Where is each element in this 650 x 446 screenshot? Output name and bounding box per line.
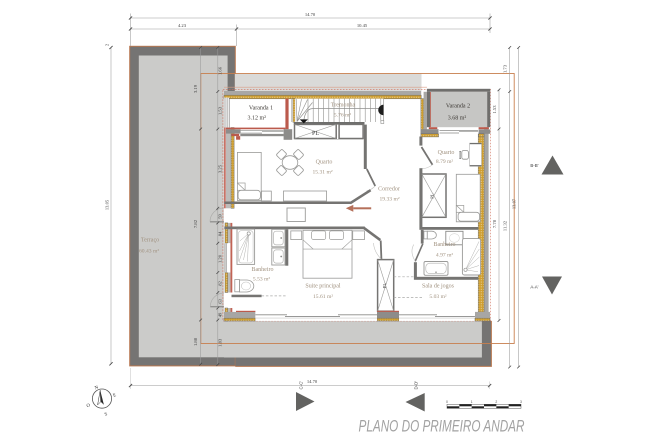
svg-text:1: 1 xyxy=(471,400,473,404)
svg-text:A-A': A-A' xyxy=(530,285,538,290)
svg-text:0: 0 xyxy=(446,400,448,404)
svg-text:60.43 m²: 60.43 m² xyxy=(139,249,159,255)
svg-text:Sala de jogos: Sala de jogos xyxy=(422,284,455,290)
svg-text:19.33 m²: 19.33 m² xyxy=(379,196,399,202)
svg-text:7.82: 7.82 xyxy=(193,219,198,228)
svg-text:59: 59 xyxy=(217,214,222,219)
svg-text:3.12 m²: 3.12 m² xyxy=(247,116,266,122)
svg-text:15.31 m²: 15.31 m² xyxy=(312,169,332,175)
svg-text:82: 82 xyxy=(217,281,222,286)
svg-text:5.76 m²: 5.76 m² xyxy=(334,113,352,119)
svg-text:3.25: 3.25 xyxy=(217,164,222,173)
svg-text:4.23: 4.23 xyxy=(178,23,187,28)
svg-text:8.79 m²: 8.79 m² xyxy=(436,159,454,165)
svg-text:Terraço: Terraço xyxy=(141,237,159,243)
svg-text:C-C': C-C' xyxy=(299,381,304,390)
svg-text:1.66: 1.66 xyxy=(217,66,222,75)
svg-text:13.05: 13.05 xyxy=(105,199,110,210)
svg-text:Banheiro: Banheiro xyxy=(252,267,274,273)
svg-text:1.83: 1.83 xyxy=(217,338,222,347)
svg-text:63: 63 xyxy=(217,299,222,304)
svg-text:3: 3 xyxy=(520,400,522,404)
svg-text:B-B': B-B' xyxy=(530,163,538,168)
svg-text:PL: PL xyxy=(312,131,319,137)
svg-text:10.45: 10.45 xyxy=(357,23,368,28)
svg-text:5.03 m²: 5.03 m² xyxy=(429,294,447,300)
svg-text:2: 2 xyxy=(495,400,497,404)
svg-text:Quarto: Quarto xyxy=(316,160,333,166)
svg-text:1.53: 1.53 xyxy=(492,105,497,114)
svg-text:Banheiro: Banheiro xyxy=(434,242,456,248)
svg-text:PLANO DO PRIMEIRO ANDAR: PLANO DO PRIMEIRO ANDAR xyxy=(359,417,525,436)
svg-text:Varanda 2: Varanda 2 xyxy=(446,103,470,109)
svg-text:14.70: 14.70 xyxy=(307,379,318,384)
svg-text:PL: PL xyxy=(430,193,435,199)
svg-text:14.70: 14.70 xyxy=(305,12,316,17)
svg-text:84: 84 xyxy=(217,231,222,236)
svg-text:7.78: 7.78 xyxy=(492,219,497,228)
svg-text:3.19: 3.19 xyxy=(193,84,198,93)
svg-text:49: 49 xyxy=(217,312,222,317)
svg-text:1.73: 1.73 xyxy=(503,64,508,73)
svg-text:Tremonha: Tremonha xyxy=(331,102,356,108)
svg-text:1.88: 1.88 xyxy=(193,337,198,346)
svg-text:15.61 m²: 15.61 m² xyxy=(313,294,333,300)
svg-text:5.53 m²: 5.53 m² xyxy=(253,277,271,283)
svg-text:Corredor: Corredor xyxy=(378,187,400,193)
svg-text:1.20: 1.20 xyxy=(217,254,222,263)
svg-text:Quarto: Quarto xyxy=(438,150,455,156)
svg-text:Suite principal: Suite principal xyxy=(305,283,340,289)
svg-text:11.32: 11.32 xyxy=(503,220,508,231)
svg-text:D-D': D-D' xyxy=(414,381,419,390)
svg-text:3.68 m²: 3.68 m² xyxy=(448,115,467,121)
svg-text:1.53: 1.53 xyxy=(217,106,222,115)
svg-text:13.07: 13.07 xyxy=(512,198,517,209)
svg-text:Varanda 1: Varanda 1 xyxy=(249,106,273,112)
svg-text:4.97 m²: 4.97 m² xyxy=(436,252,454,258)
svg-text:PL: PL xyxy=(382,283,387,289)
